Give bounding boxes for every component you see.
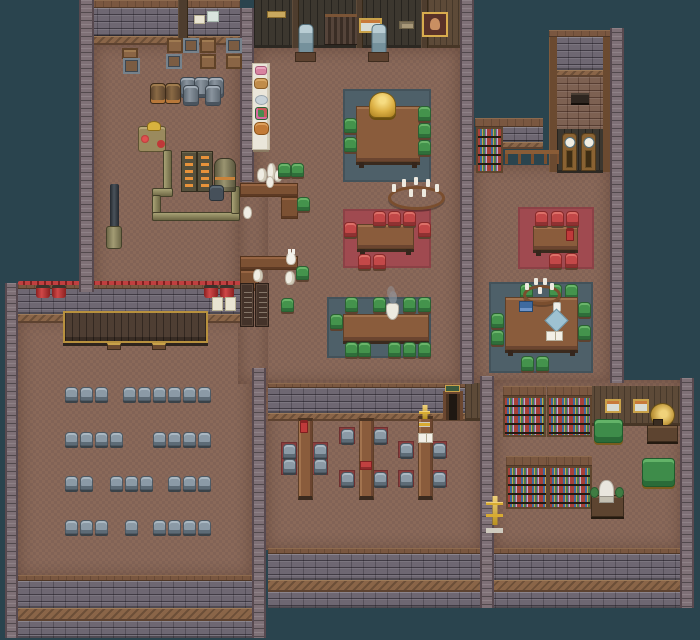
- chimney-vent: [571, 93, 589, 105]
- lit-cabinet[interactable]: [181, 151, 197, 192]
- white-bust: [599, 480, 614, 502]
- audience-stool[interactable]: [168, 432, 181, 446]
- stage-step[interactable]: [152, 343, 166, 350]
- audience-stool[interactable]: [138, 387, 151, 401]
- barrel[interactable]: [150, 83, 166, 104]
- red-lantern: [52, 285, 66, 298]
- audience-stool[interactable]: [183, 387, 196, 401]
- stool[interactable]: [418, 297, 431, 312]
- stool[interactable]: [330, 314, 343, 329]
- audience-stool[interactable]: [153, 387, 166, 401]
- pipe: [152, 212, 240, 221]
- smokestack-base: [106, 226, 122, 249]
- pinned-note: [207, 11, 219, 22]
- stool[interactable]: [418, 222, 431, 237]
- brick-pillar: [460, 0, 474, 384]
- stool[interactable]: [418, 342, 431, 357]
- crate[interactable]: [183, 38, 199, 53]
- performance-stage[interactable]: [63, 311, 208, 343]
- switch-panel: [399, 21, 414, 29]
- stool[interactable]: [344, 137, 357, 152]
- audience-stool[interactable]: [198, 476, 211, 490]
- crate[interactable]: [226, 54, 242, 69]
- green-couch[interactable]: [642, 458, 675, 487]
- stage-room-floor: [18, 318, 252, 577]
- audience-stool[interactable]: [65, 387, 78, 401]
- study-table[interactable]: [418, 416, 433, 500]
- gramophone-table[interactable]: [647, 425, 678, 442]
- study-door[interactable]: [443, 391, 463, 420]
- stool[interactable]: [358, 254, 371, 269]
- barrel[interactable]: [183, 85, 199, 106]
- bookshelf-top: [506, 456, 548, 466]
- smokestack: [110, 184, 119, 228]
- library-bookshelf[interactable]: [547, 396, 592, 437]
- audience-stool[interactable]: [125, 520, 138, 534]
- stool[interactable]: [283, 459, 296, 473]
- audience-stool[interactable]: [110, 432, 123, 446]
- stool[interactable]: [344, 222, 357, 237]
- stool[interactable]: [403, 342, 416, 357]
- audience-stool[interactable]: [125, 476, 138, 490]
- brick-pillar: [252, 368, 266, 638]
- founder-portrait: [422, 12, 448, 37]
- audience-stool[interactable]: [95, 520, 108, 534]
- audience-stool[interactable]: [153, 432, 166, 446]
- stool[interactable]: [296, 266, 309, 280]
- wall-shelf: [267, 11, 286, 18]
- tower-ledge: [557, 70, 603, 77]
- stool[interactable]: [491, 313, 504, 328]
- crate[interactable]: [200, 38, 216, 53]
- audience-stool[interactable]: [183, 476, 196, 490]
- gramophone[interactable]: [650, 403, 675, 427]
- audience-stool[interactable]: [153, 520, 166, 534]
- brick-pillar: [480, 376, 494, 608]
- stool[interactable]: [373, 211, 386, 226]
- stool[interactable]: [281, 298, 294, 312]
- stool[interactable]: [549, 253, 562, 268]
- chaise-lounge[interactable]: [594, 419, 623, 443]
- library-bookshelf[interactable]: [503, 396, 546, 437]
- tower-stone-top: [557, 37, 603, 70]
- stool[interactable]: [403, 297, 416, 312]
- white-jug: [285, 271, 295, 285]
- game-canvas[interactable]: [0, 0, 700, 640]
- menu-board[interactable]: [240, 283, 254, 327]
- south-bottom-ledge: [268, 580, 690, 592]
- stool[interactable]: [373, 297, 386, 312]
- stool[interactable]: [418, 106, 431, 121]
- stool[interactable]: [565, 253, 578, 268]
- stool[interactable]: [314, 459, 327, 473]
- brick-pillar: [79, 0, 94, 292]
- stool[interactable]: [373, 254, 386, 269]
- hallway-bookshelf[interactable]: [476, 127, 503, 173]
- study-wall: [268, 388, 465, 413]
- audience-stool[interactable]: [198, 387, 211, 401]
- red-bottle: [300, 420, 308, 433]
- stool[interactable]: [536, 356, 549, 371]
- gold-trophy[interactable]: [369, 92, 396, 118]
- open-book[interactable]: [418, 433, 433, 443]
- audience-stool[interactable]: [95, 432, 108, 446]
- audience-stool[interactable]: [110, 476, 123, 490]
- stool[interactable]: [358, 342, 371, 357]
- south-bottom-wall: [268, 554, 690, 580]
- stool[interactable]: [418, 140, 431, 155]
- armor-statue[interactable]: [294, 24, 317, 62]
- door-sign: [445, 385, 460, 392]
- audience-stool[interactable]: [198, 432, 211, 446]
- stool[interactable]: [400, 472, 413, 486]
- open-book[interactable]: [546, 331, 563, 341]
- stool[interactable]: [566, 211, 579, 226]
- stool[interactable]: [345, 342, 358, 357]
- book-stack[interactable]: [519, 301, 533, 312]
- stool[interactable]: [551, 211, 564, 226]
- stage-step[interactable]: [107, 343, 121, 350]
- bookshelf-top: [503, 386, 546, 396]
- audience-stool[interactable]: [80, 432, 93, 446]
- audience-stool[interactable]: [80, 476, 93, 490]
- stool[interactable]: [345, 297, 358, 312]
- potted-plant: [590, 487, 599, 498]
- bookshelf-top: [547, 386, 592, 396]
- small-picture: [633, 399, 649, 413]
- tower-top-beam: [549, 30, 611, 37]
- stage-poster: [225, 297, 236, 311]
- stool[interactable]: [535, 211, 548, 226]
- stool[interactable]: [388, 342, 401, 357]
- potted-plant: [615, 487, 624, 498]
- library-bookshelf[interactable]: [548, 466, 592, 509]
- kitchen-wall-beam: [79, 0, 240, 8]
- crate[interactable]: [123, 58, 140, 74]
- hallway-wall-ledge: [503, 142, 543, 149]
- audience-stool[interactable]: [123, 387, 136, 401]
- stool[interactable]: [578, 302, 591, 317]
- white-rabbit[interactable]: [286, 252, 296, 265]
- kitchen-wall-ledge: [86, 36, 240, 45]
- audience-stool[interactable]: [168, 476, 181, 490]
- menu-board[interactable]: [255, 283, 269, 327]
- audience-stool[interactable]: [183, 520, 196, 534]
- red-bottle: [566, 228, 574, 241]
- garlic-bulb: [243, 206, 252, 219]
- audience-stool[interactable]: [168, 520, 181, 534]
- audience-stool[interactable]: [65, 432, 78, 446]
- flower-dish: [255, 107, 268, 120]
- brick-pillar: [5, 283, 18, 638]
- stool[interactable]: [491, 330, 504, 345]
- grandfather-clock[interactable]: [581, 133, 596, 171]
- bookshelf-top: [548, 456, 592, 466]
- dining-table[interactable]: [357, 224, 414, 249]
- audience-stool[interactable]: [65, 520, 78, 534]
- stool[interactable]: [374, 429, 387, 443]
- stool[interactable]: [278, 163, 291, 177]
- stool[interactable]: [403, 211, 416, 226]
- stool[interactable]: [341, 472, 354, 486]
- bread-loaf: [254, 78, 268, 89]
- small-picture: [605, 399, 621, 413]
- brick-pillar: [610, 28, 624, 383]
- red-book[interactable]: [360, 461, 372, 470]
- wall-curtain: [325, 14, 357, 45]
- hallway-wall-piece: [503, 127, 543, 142]
- stool[interactable]: [297, 197, 310, 211]
- bar-counter[interactable]: [281, 197, 298, 219]
- valve-machine[interactable]: [138, 126, 166, 152]
- red-lantern: [36, 285, 50, 298]
- left-bottom-ledge: [18, 608, 258, 621]
- stool[interactable]: [433, 472, 446, 486]
- crate[interactable]: [167, 38, 183, 53]
- stool[interactable]: [578, 325, 591, 340]
- cooking-pot[interactable]: [209, 185, 224, 201]
- stool[interactable]: [418, 123, 431, 138]
- stage-poster: [212, 297, 223, 311]
- hallway-shelf-bar: [475, 118, 543, 127]
- gold-candelabra: [486, 496, 503, 533]
- brick-pillar: [680, 378, 694, 608]
- study-table[interactable]: [359, 418, 374, 500]
- audience-stool[interactable]: [65, 476, 78, 490]
- stool[interactable]: [283, 444, 296, 458]
- stool[interactable]: [341, 429, 354, 443]
- south-bottom-footer: [268, 592, 690, 608]
- crate[interactable]: [226, 38, 242, 53]
- stool[interactable]: [433, 443, 446, 457]
- stool[interactable]: [344, 118, 357, 133]
- audience-stool[interactable]: [80, 520, 93, 534]
- stool[interactable]: [521, 356, 534, 371]
- fish-plate: [255, 95, 268, 105]
- pinned-note: [194, 15, 205, 24]
- stool[interactable]: [291, 163, 304, 177]
- barrel[interactable]: [205, 85, 221, 106]
- stool[interactable]: [388, 211, 401, 226]
- roast-turkey: [254, 122, 269, 135]
- stool[interactable]: [314, 444, 327, 458]
- audience-stool[interactable]: [183, 432, 196, 446]
- barrel[interactable]: [165, 83, 181, 104]
- gold-candlestick: [419, 405, 430, 427]
- crate[interactable]: [200, 54, 216, 69]
- left-bottom-footer: [18, 621, 258, 638]
- white-jug: [253, 269, 263, 282]
- stool[interactable]: [374, 472, 387, 486]
- grandfather-clock[interactable]: [562, 133, 577, 171]
- chandelier: [521, 276, 557, 303]
- cake-dish: [255, 66, 267, 75]
- crate[interactable]: [166, 54, 182, 69]
- left-bottom-wall: [18, 581, 258, 608]
- stool[interactable]: [400, 443, 413, 457]
- chandelier: [386, 176, 441, 206]
- wood-railing: [505, 150, 559, 164]
- library-bookshelf[interactable]: [506, 466, 548, 509]
- audience-stool[interactable]: [198, 520, 211, 534]
- audience-stool[interactable]: [140, 476, 153, 490]
- garlic-bulb: [266, 176, 274, 188]
- audience-stool[interactable]: [95, 387, 108, 401]
- audience-stool[interactable]: [80, 387, 93, 401]
- long-table[interactable]: [343, 314, 429, 341]
- audience-stool[interactable]: [168, 387, 181, 401]
- armor-statue[interactable]: [367, 24, 390, 62]
